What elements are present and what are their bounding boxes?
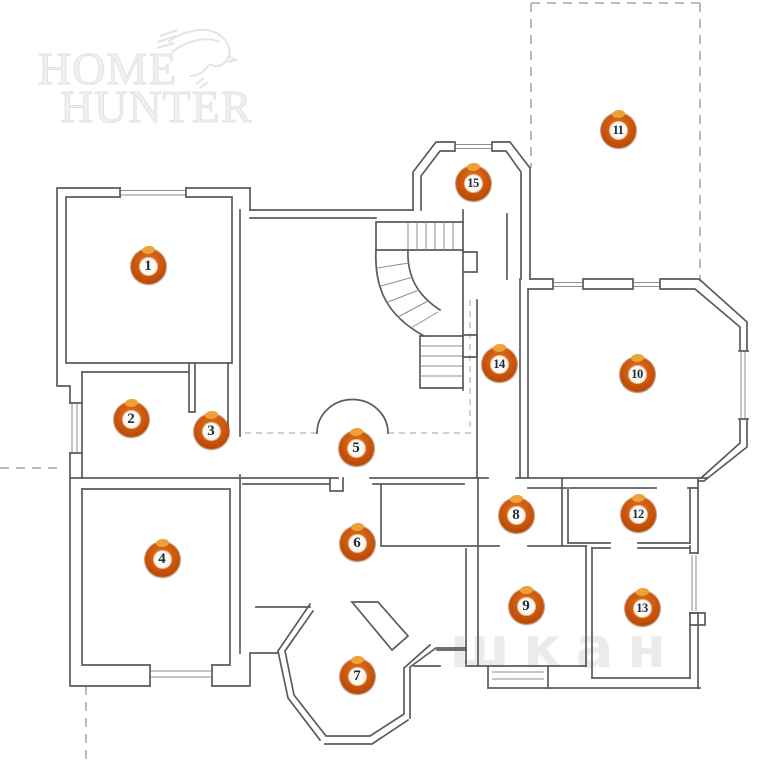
room-marker-15: 15 [456, 166, 491, 201]
room-marker-face: 8 [507, 506, 526, 525]
room-marker-number: 13 [636, 602, 648, 615]
room-marker-number: 4 [158, 552, 166, 567]
room-marker-number: 3 [207, 424, 215, 439]
room-marker-face: 15 [464, 174, 483, 193]
room-marker-number: 8 [512, 508, 520, 523]
room-marker-face: 13 [633, 599, 652, 618]
room-marker-1: 1 [131, 249, 166, 284]
room-marker-7: 7 [340, 659, 375, 694]
room-marker-face: 3 [202, 422, 221, 441]
room-marker-3: 3 [194, 414, 229, 449]
room-marker-2: 2 [114, 402, 149, 437]
room-marker-6: 6 [340, 526, 375, 561]
room-marker-number: 1 [144, 259, 152, 274]
room-marker-14: 14 [482, 347, 517, 382]
room-marker-face: 6 [348, 534, 367, 553]
floor-plan-image: HOME HUNTER шкан [0, 0, 762, 762]
room-marker-10: 10 [620, 357, 655, 392]
room-marker-number: 10 [631, 368, 643, 381]
room-marker-face: 4 [153, 550, 172, 569]
room-marker-4: 4 [145, 542, 180, 577]
room-marker-8: 8 [499, 498, 534, 533]
room-marker-number: 14 [493, 358, 505, 371]
room-marker-face: 11 [609, 121, 628, 140]
room-marker-number: 5 [352, 441, 360, 456]
room-marker-face: 5 [347, 439, 366, 458]
room-marker-9: 9 [509, 589, 544, 624]
room-marker-face: 9 [517, 597, 536, 616]
room-marker-5: 5 [339, 431, 374, 466]
dashed-outlines [0, 3, 700, 762]
room-marker-face: 7 [348, 667, 367, 686]
room-marker-number: 11 [613, 124, 624, 137]
room-marker-number: 2 [127, 412, 135, 427]
room-marker-face: 10 [628, 365, 647, 384]
room-marker-face: 12 [629, 505, 648, 524]
room-marker-number: 12 [632, 508, 644, 521]
room-marker-13: 13 [625, 591, 660, 626]
room-marker-face: 1 [139, 257, 158, 276]
room-marker-number: 9 [522, 599, 530, 614]
room-marker-number: 15 [467, 177, 479, 190]
walls [57, 142, 747, 744]
room-marker-11: 11 [601, 113, 636, 148]
room-marker-face: 2 [122, 410, 141, 429]
room-marker-number: 7 [353, 669, 361, 684]
room-marker-12: 12 [621, 497, 656, 532]
room-marker-number: 6 [353, 536, 361, 551]
staircase [376, 210, 477, 390]
room-marker-face: 14 [490, 355, 509, 374]
